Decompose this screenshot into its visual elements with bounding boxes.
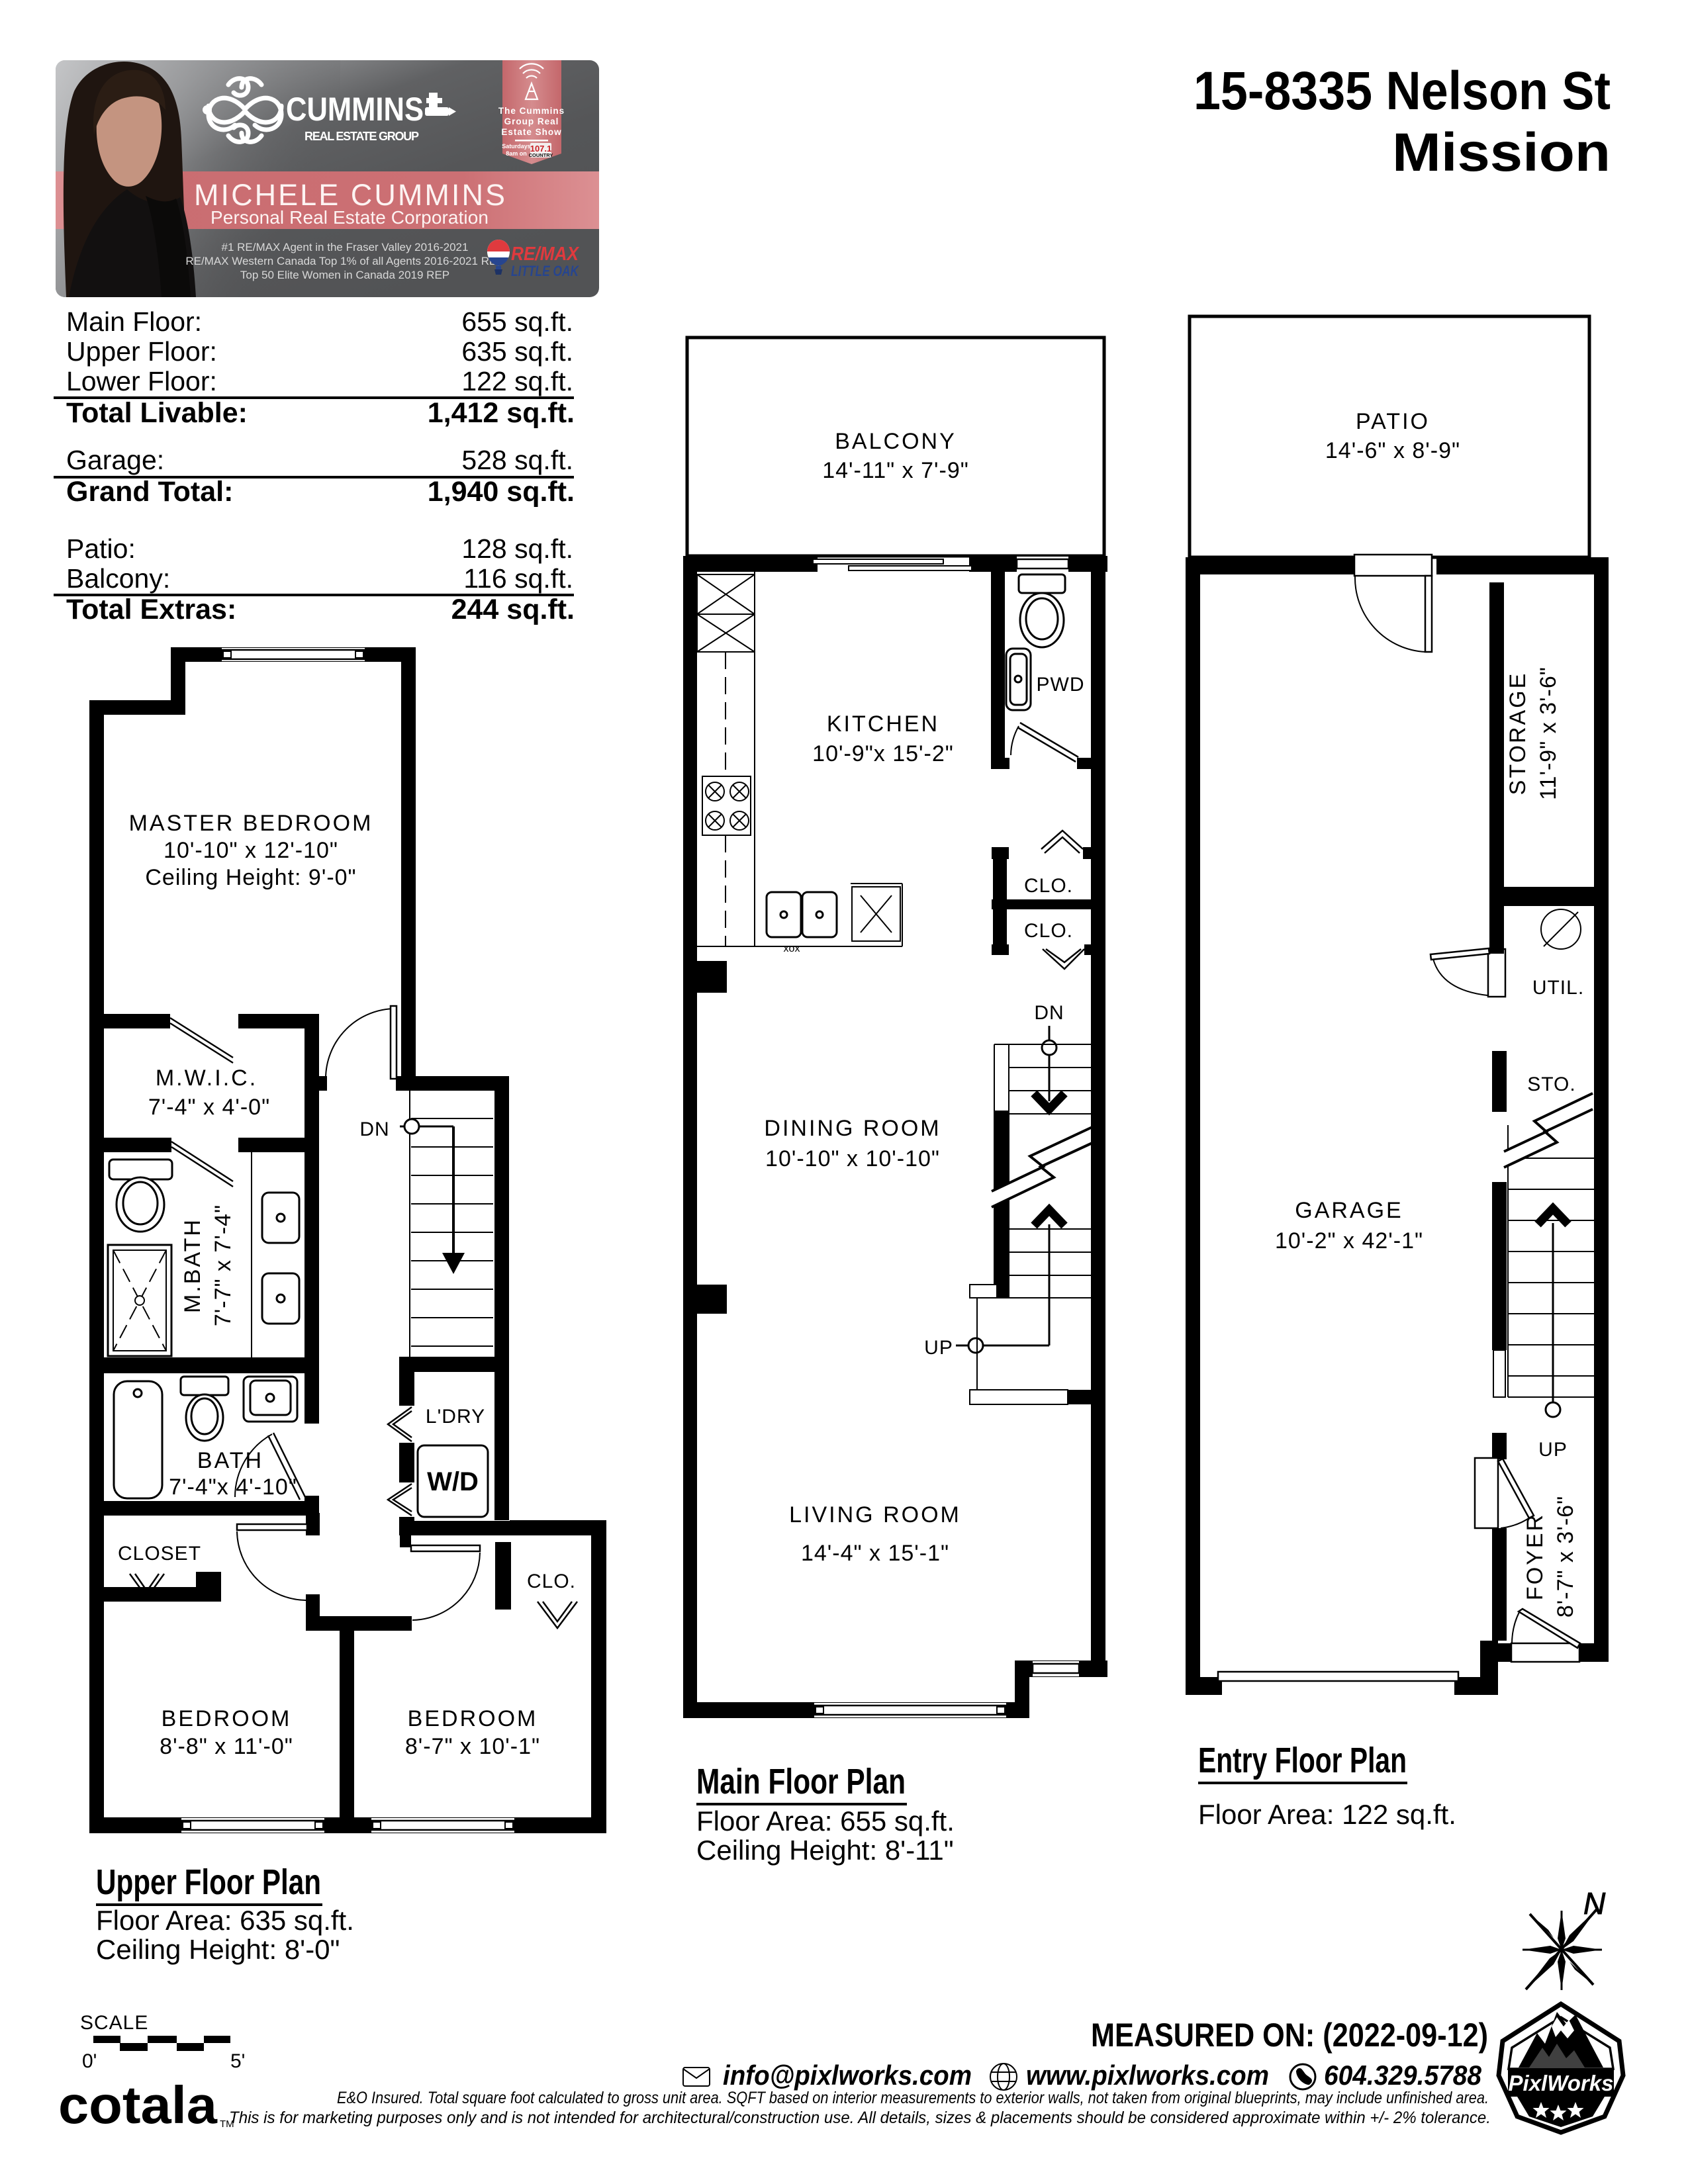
svg-text:Main Floor:: Main Floor: [66,306,202,337]
svg-text:BATH: BATH [197,1448,263,1473]
svg-text:DINING ROOM: DINING ROOM [764,1116,941,1141]
svg-text:www.pixlworks.com: www.pixlworks.com [1026,2060,1269,2091]
svg-text:Grand Total:: Grand Total: [66,476,233,508]
svg-text:MASTER BEDROOM: MASTER BEDROOM [129,811,373,836]
svg-text:Ceiling Height: 8'-0": Ceiling Height: 8'-0" [96,1934,340,1965]
svg-text:RE/MAX: RE/MAX [511,244,579,265]
svg-text:8am on: 8am on [506,150,527,157]
svg-text:8'-8" x 11'-0": 8'-8" x 11'-0" [160,1734,293,1759]
svg-text:UTIL.: UTIL. [1532,977,1584,999]
svg-text:635 sq.ft.: 635 sq.ft. [461,336,573,367]
svg-text:116 sq.ft.: 116 sq.ft. [463,563,573,594]
svg-text:Ceiling Height: 9'-0": Ceiling Height: 9'-0" [145,865,356,890]
svg-text:Total Extras:: Total Extras: [66,594,236,625]
svg-text:REAL ESTATE GROUP: REAL ESTATE GROUP [305,130,419,143]
svg-text:Upper Floor:: Upper Floor: [66,336,217,367]
svg-text:Estate Show: Estate Show [501,127,561,137]
svg-text:UP: UP [1538,1439,1568,1461]
svg-text:7'-4" x 4'-0": 7'-4" x 4'-0" [148,1095,270,1120]
svg-text:This is for marketing purposes: This is for marketing purposes only and … [229,2109,1491,2127]
svg-text:11'-9" x 3'-6": 11'-9" x 3'-6" [1536,666,1561,800]
svg-text:604.329.5788: 604.329.5788 [1324,2060,1482,2091]
svg-text:PixlWorks: PixlWorks [1509,2071,1614,2095]
svg-text:5': 5' [230,2050,245,2072]
svg-text:info@pixlworks.com: info@pixlworks.com [723,2060,972,2091]
svg-text:8'-7" x 10'-1": 8'-7" x 10'-1" [405,1734,540,1759]
svg-text:Entry Floor Plan: Entry Floor Plan [1198,1741,1407,1780]
svg-text:Top 50 Elite Women in Canada 2: Top 50 Elite Women in Canada 2019 REP [240,269,449,281]
svg-text:UP: UP [924,1337,953,1359]
svg-text:FOYER: FOYER [1523,1513,1548,1600]
svg-text:L'DRY: L'DRY [426,1406,485,1428]
svg-text:LIVING ROOM: LIVING ROOM [789,1502,961,1527]
svg-text:xox: xox [784,943,800,954]
svg-text:0': 0' [82,2050,97,2072]
svg-text:Floor Area: 122 sq.ft.: Floor Area: 122 sq.ft. [1198,1799,1456,1830]
svg-text:10'-10" x 10'-10": 10'-10" x 10'-10" [765,1146,940,1171]
svg-text:Patio:: Patio: [66,533,136,564]
svg-text:14'-4" x 15'-1": 14'-4" x 15'-1" [801,1541,949,1566]
svg-text:8'-7" x 3'-6": 8'-7" x 3'-6" [1553,1496,1578,1617]
svg-text:Floor Area: 635 sq.ft.: Floor Area: 635 sq.ft. [96,1905,354,1936]
svg-text:Garage:: Garage: [66,445,164,475]
svg-text:cotala: cotala [58,2075,218,2134]
svg-text:DN: DN [359,1118,389,1140]
svg-text:14'-6" x 8'-9": 14'-6" x 8'-9" [1325,438,1460,463]
svg-text:528 sq.ft.: 528 sq.ft. [461,445,573,475]
svg-text:COUNTRY: COUNTRY [529,152,553,158]
svg-text:BALCONY: BALCONY [835,429,957,454]
svg-text:244 sq.ft.: 244 sq.ft. [451,594,575,625]
svg-text:Saturdays: Saturdays [502,143,531,150]
svg-text:The Cummins: The Cummins [498,106,565,116]
svg-text:Upper Floor Plan: Upper Floor Plan [96,1862,321,1902]
svg-text:1,940 sq.ft.: 1,940 sq.ft. [428,476,575,508]
svg-text:CLOSET: CLOSET [118,1543,201,1565]
svg-text:SCALE: SCALE [80,2012,148,2034]
svg-text:122 sq.ft.: 122 sq.ft. [461,366,573,396]
svg-text:MEASURED ON: (2022-09-12): MEASURED ON: (2022-09-12) [1091,2017,1488,2054]
svg-text:CLO.: CLO. [527,1570,576,1592]
svg-text:CLO.: CLO. [1024,875,1073,897]
svg-text:STORAGE: STORAGE [1505,672,1530,796]
svg-text:Ceiling Height: 8'-11": Ceiling Height: 8'-11" [696,1835,954,1866]
svg-text:M.BATH: M.BATH [180,1218,205,1313]
svg-text:15-8335 Nelson St: 15-8335 Nelson St [1194,61,1611,121]
svg-text:W/D: W/D [427,1467,479,1496]
svg-text:CLO.: CLO. [1024,920,1073,942]
svg-text:10'-10" x 12'-10": 10'-10" x 12'-10" [164,838,338,863]
svg-text:E&O Insured. Total square foo: E&O Insured. Total square foot calculate… [337,2089,1489,2107]
svg-text:Lower Floor:: Lower Floor: [66,366,217,396]
svg-text:7'-4"x 4'-10": 7'-4"x 4'-10" [169,1475,297,1500]
svg-text:BEDROOM: BEDROOM [408,1706,538,1731]
svg-text:10'-2" x 42'-1": 10'-2" x 42'-1" [1275,1228,1423,1253]
svg-text:BEDROOM: BEDROOM [162,1706,292,1731]
svg-text:128 sq.ft.: 128 sq.ft. [461,533,573,564]
svg-text:RE/MAX Western Canada Top 1% o: RE/MAX Western Canada Top 1% of all Agen… [185,255,504,267]
svg-text:CUMMINS: CUMMINS [286,91,424,128]
svg-text:Total Livable:: Total Livable: [66,397,248,429]
svg-text:10'-9"x 15'-2": 10'-9"x 15'-2" [812,741,954,766]
svg-text:14'-11" x 7'-9": 14'-11" x 7'-9" [822,458,969,483]
svg-text:GARAGE: GARAGE [1295,1198,1403,1223]
svg-text:Group Real: Group Real [504,116,559,126]
svg-text:M.W.I.C.: M.W.I.C. [156,1066,258,1091]
svg-text:Personal Real Estate Corporati: Personal Real Estate Corporation [211,207,489,228]
svg-text:PWD: PWD [1037,674,1085,696]
svg-text:N: N [1583,1886,1606,1921]
svg-text:PATIO: PATIO [1356,409,1430,434]
svg-text:Balcony:: Balcony: [66,563,170,594]
svg-text:Floor Area: 655 sq.ft.: Floor Area: 655 sq.ft. [696,1805,955,1837]
svg-text:DN: DN [1034,1002,1064,1024]
svg-text:STO.: STO. [1527,1073,1575,1095]
svg-text:#1 RE/MAX Agent in the Fraser: #1 RE/MAX Agent in the Fraser Valley 201… [222,241,469,253]
svg-text:1,412 sq.ft.: 1,412 sq.ft. [428,397,575,429]
svg-text:Mission: Mission [1392,122,1611,183]
svg-text:LITTLE OAK: LITTLE OAK [511,263,580,279]
svg-text:Main Floor Plan: Main Floor Plan [696,1762,906,1801]
svg-text:655 sq.ft.: 655 sq.ft. [461,306,573,337]
svg-text:7'-7" x 7'-4": 7'-7" x 7'-4" [211,1205,236,1326]
svg-text:KITCHEN: KITCHEN [827,711,939,737]
